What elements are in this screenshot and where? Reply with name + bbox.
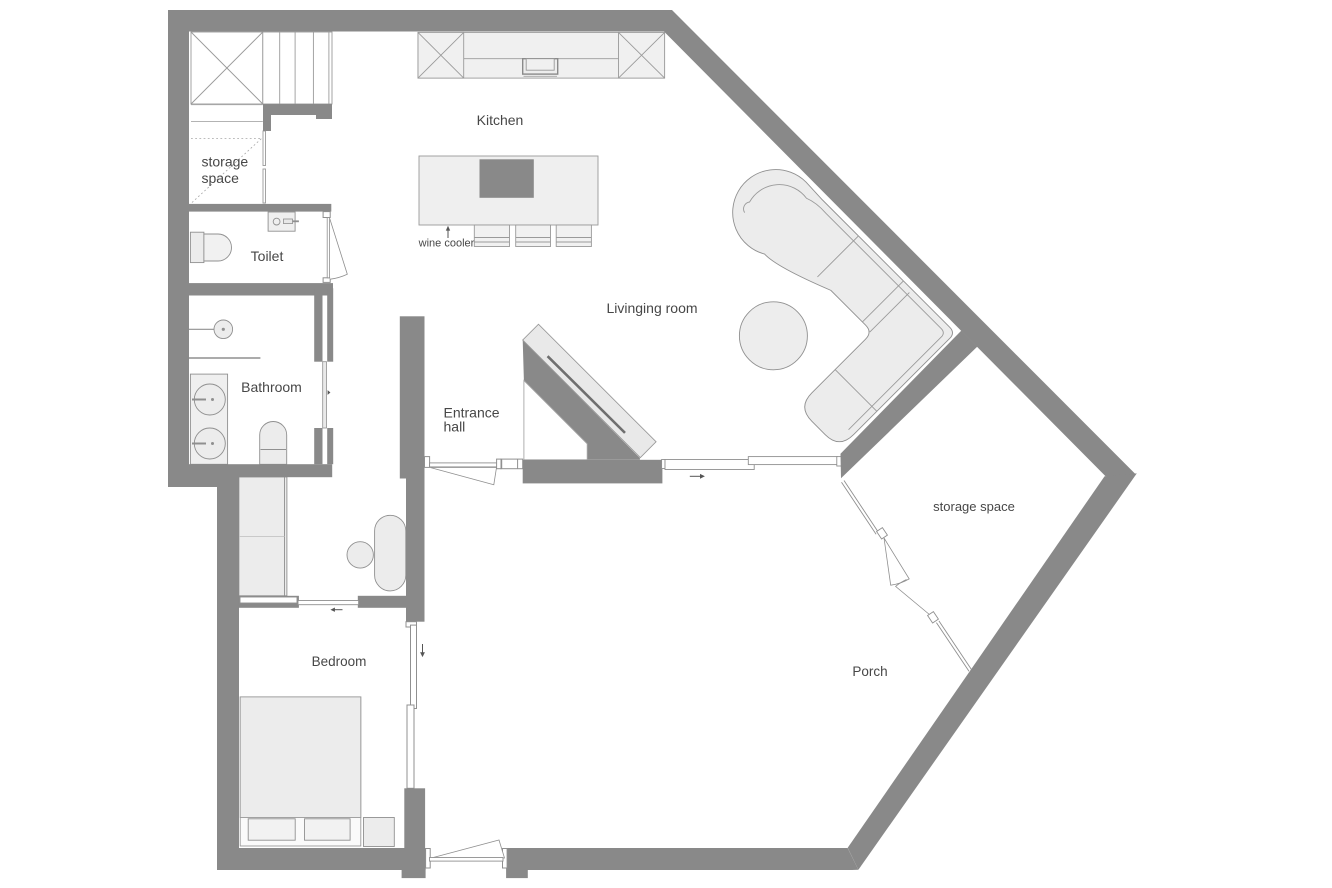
svg-text:wine cooler: wine cooler [418,238,475,250]
svg-text:Kitchen: Kitchen [477,112,524,128]
svg-text:Livinging room: Livinging room [606,300,697,316]
svg-text:hall: hall [444,419,466,435]
svg-text:Bedroom: Bedroom [312,654,367,669]
svg-text:storage space: storage space [933,499,1015,514]
svg-text:Porch: Porch [852,664,887,679]
svg-text:Toilet: Toilet [251,248,284,264]
svg-text:storage: storage [202,154,249,170]
svg-text:space: space [202,170,240,186]
svg-text:Bathroom: Bathroom [241,379,302,395]
